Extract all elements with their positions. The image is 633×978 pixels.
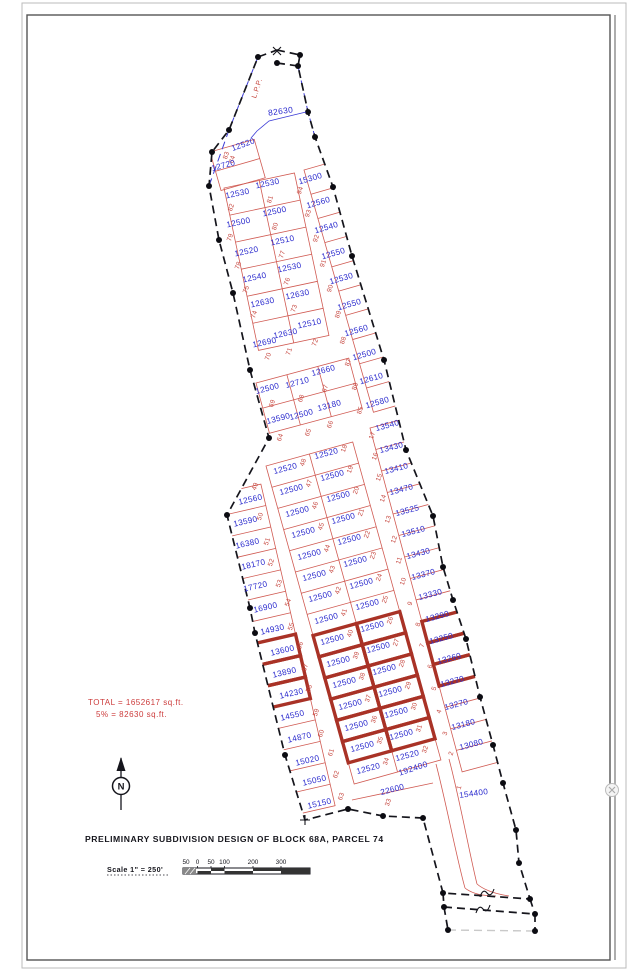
plat-drawing: 1252084127208312530821253081125007912500…	[0, 0, 633, 978]
lot-area-label: 12500	[301, 568, 327, 583]
lot-number-label: 54	[284, 598, 293, 608]
lot-number-label: 20	[352, 486, 361, 496]
lot-area-label: 14930	[260, 622, 286, 636]
lot-area-label: 13370	[410, 567, 436, 582]
lot-number-label: 2	[448, 750, 456, 756]
lot-number-label: 34	[382, 757, 391, 767]
lot-area-label: 12500	[313, 611, 339, 626]
lot-number-label: 22	[363, 530, 372, 540]
lot-area-label: 14230	[279, 686, 305, 700]
lot-area-label: 13260	[436, 651, 462, 666]
lot-number-label: 44	[323, 544, 332, 554]
lot-area-label: 13270	[439, 674, 465, 689]
scale-tick: 300	[276, 859, 287, 866]
lot-area-label: 14550	[280, 708, 306, 722]
lot-area-label: 12500	[330, 511, 356, 526]
lot-area-label: 14870	[287, 730, 313, 744]
lot-number-label: 23	[369, 551, 378, 561]
lot-area-label: 15300	[297, 171, 323, 186]
lot-number-label: 7	[419, 642, 427, 648]
lot-area-label: 17720	[243, 579, 269, 593]
lot-number-label: 11	[395, 556, 404, 565]
lot-number-label: 61	[327, 748, 336, 758]
lot-area-label: 12500	[325, 489, 351, 504]
lot-area-label: 13890	[272, 665, 298, 679]
lot-area-label: 13540	[374, 418, 400, 433]
lot-area-label: 12500	[342, 554, 368, 569]
lot-area-label: 15020	[295, 753, 321, 767]
lot-number-label: 41	[340, 608, 349, 618]
close-icon[interactable]	[606, 784, 619, 797]
lot-number-label: 87	[344, 358, 353, 368]
lot-number-label: 15	[375, 473, 384, 483]
lot-number-label: 73	[290, 304, 299, 314]
lot-number-label: 36	[370, 715, 379, 725]
lot-area-label: 13525	[394, 503, 420, 518]
break-symbol	[476, 905, 490, 913]
lot-area-label: 12630	[250, 296, 276, 310]
lot-number-label: 39	[352, 651, 361, 661]
lot-number-label: 64	[276, 433, 285, 443]
lot-number-label: 75	[242, 285, 251, 295]
lot-area-label: 12630	[285, 288, 311, 302]
lot-number-label: 31	[415, 724, 424, 734]
lot-number-label: 51	[263, 537, 272, 547]
lot-number-label: 25	[381, 595, 390, 605]
lot-area-label: 12560	[305, 195, 331, 210]
lot-number-label: 68	[297, 394, 306, 404]
lot-number-label: 50	[256, 512, 265, 522]
total-area-note: TOTAL = 1652617 sq.ft.	[88, 698, 184, 707]
lot-number-label: 12	[390, 535, 399, 545]
lot-area-label: 12540	[242, 271, 268, 285]
lot-area-label: 12580	[364, 395, 390, 410]
lot-area-label: 12520	[355, 761, 381, 776]
lot-number-label: 10	[399, 577, 408, 587]
lot-number-label: 69	[268, 399, 277, 409]
lot-number-label: 37	[364, 694, 373, 704]
lot-area-label: 12520	[234, 245, 260, 259]
outer-frame	[22, 3, 626, 968]
lot-area-label: 12510	[297, 317, 323, 331]
lot-number-label: 45	[317, 522, 326, 532]
lot-number-label: 38	[358, 672, 367, 682]
lot-number-label: 33	[384, 798, 393, 808]
lot-number-label: 66	[326, 420, 335, 430]
lot-area-label: 12500	[290, 525, 316, 540]
lot-number-label: 94	[296, 186, 305, 196]
lot-area-label: 15150	[307, 796, 333, 810]
lot-area-label: 12500	[262, 205, 288, 219]
lot-number-label: 62	[332, 770, 341, 780]
lot-area-label: 13290	[424, 609, 450, 624]
lot-number-label: 21	[357, 508, 366, 518]
scale-tick: 200	[248, 859, 259, 866]
lot-number-label: 63	[337, 792, 346, 802]
lot-number-label: 52	[267, 558, 276, 568]
lot-area-label: 13330	[417, 587, 443, 602]
lot-number-label: 42	[334, 586, 343, 596]
scale-tick: 50	[182, 859, 190, 866]
lot-number-label: 5	[431, 685, 439, 691]
scale-tick: 50	[207, 859, 215, 866]
lot-area-label: 12500	[288, 407, 314, 422]
lot-number-label: 19	[346, 465, 355, 475]
lot-area-label: 12520	[230, 136, 256, 153]
north-arrow: N	[113, 757, 130, 810]
lot-number-label: 30	[410, 702, 419, 712]
lot-area-label: 12550	[320, 246, 346, 261]
lot-area-label: 13510	[400, 524, 426, 539]
lot-number-label: 29	[404, 681, 413, 691]
lot-area-label: 12530	[255, 177, 281, 191]
lot-area-label: 154400	[459, 787, 489, 800]
lot-area-label: 12560	[238, 492, 264, 506]
lot-area-label: 12500	[343, 718, 369, 733]
lot-area-label: 12710	[284, 375, 310, 390]
lot-area-label: 12720	[210, 158, 236, 173]
lot-area-label: 12500	[284, 504, 310, 519]
lot-number-label: 14	[379, 494, 388, 504]
lot-number-label: 46	[311, 501, 320, 511]
lot-number-label: 26	[386, 616, 395, 626]
lot-area-label: 12510	[270, 234, 296, 248]
lot-number-label: 58	[305, 684, 314, 694]
lot-number-label: 1	[456, 784, 464, 790]
lot-area-label: 13470	[388, 482, 414, 497]
lot-area-label: 13590	[233, 514, 259, 528]
lot-area-label: 13180	[450, 717, 476, 732]
lot-number-label: 40	[346, 629, 355, 639]
lot-number-label: 92	[312, 234, 321, 244]
lot-number-label: 57	[301, 663, 310, 673]
lot-number-label: 32	[421, 745, 430, 755]
lot-number-label: 59	[312, 708, 321, 718]
lot-area-label: 13430	[405, 546, 431, 561]
lot-number-label: 86	[351, 382, 360, 392]
lot-area-label: 13430	[378, 440, 404, 455]
lot-number-label: 24	[375, 573, 384, 583]
lot-number-label: 81	[266, 195, 275, 205]
lot-number-label: 74	[250, 310, 259, 320]
lot-area-label: 13270	[443, 697, 469, 712]
lot-number-label: 93	[304, 209, 313, 219]
lot-area-label: 12500	[226, 216, 252, 230]
lot-number-label: 4	[436, 708, 444, 714]
lot-area-label: 16900	[253, 600, 279, 614]
lot-number-label: 65	[304, 428, 313, 438]
lot-number-label: 60	[317, 729, 326, 739]
lot-area-label: 13410	[383, 461, 409, 476]
lot-area-label: 13250	[428, 631, 454, 646]
lot-number-label: 47	[305, 479, 314, 489]
plat-page: 1252084127208312530821253081125007912500…	[0, 0, 633, 978]
scale-tick: 0	[196, 859, 200, 866]
lot-number-label: 80	[271, 222, 280, 232]
scale-text: Scale 1" = 250'	[107, 865, 163, 874]
lot-number-label: 28	[398, 659, 407, 669]
lot-number-label: 77	[278, 250, 287, 260]
lot-blocks	[210, 139, 532, 815]
strip-faint-line	[448, 930, 535, 931]
drawing-title: PRELIMINARY SUBDIVISION DESIGN OF BLOCK …	[85, 834, 384, 844]
lot-area-label: 12500	[349, 739, 375, 754]
road-lines	[352, 759, 509, 896]
lot-area-label: 12550	[336, 297, 362, 312]
lot-labels: 1252084127208312530821253081125007912500…	[210, 136, 488, 810]
lot-number-label: 43	[328, 565, 337, 575]
cross-mark	[300, 815, 310, 825]
lot-area-label: 12520	[313, 446, 339, 461]
lot-area-label: 12500	[319, 468, 345, 483]
lot-area-label: 12500	[354, 597, 380, 612]
lot-number-label: 48	[299, 458, 308, 468]
lot-number-label: 49	[251, 482, 260, 492]
lpp-label: L.P.P.	[251, 78, 264, 99]
lot-number-label: 76	[283, 277, 292, 287]
lot-area-label: 18170	[241, 557, 267, 571]
north-letter: N	[118, 782, 125, 793]
lot-number-label: 9	[407, 600, 415, 606]
lot-area-label: 12530	[328, 271, 354, 286]
lot-area-label: 12500	[336, 532, 362, 547]
lot-number-label: 3	[442, 730, 450, 736]
lot-area-label: 12500	[348, 576, 374, 591]
lot-number-label: 82	[227, 203, 236, 213]
lot-area-label: 12540	[313, 220, 339, 235]
lot-number-label: 18	[340, 444, 349, 454]
lot-area-label: 12660	[310, 363, 336, 378]
lot-number-label: 13	[384, 515, 393, 525]
lot-area-label: 12500	[254, 381, 280, 396]
lot-number-label: 27	[392, 638, 401, 648]
lot-area-label: 12500	[331, 675, 357, 690]
lot-area-label: 12630	[273, 327, 299, 341]
lot-area-label: 13080	[458, 737, 484, 752]
lot-area-label: 13600	[270, 643, 296, 657]
lot-area-label: 12500	[307, 589, 333, 604]
lot-area-label: 16380	[235, 536, 261, 550]
lot-number-label: 67	[321, 384, 330, 394]
reserve-percent-note: 5% = 82630 sq.ft.	[96, 710, 167, 719]
lot-area-label: 12530	[277, 261, 303, 275]
lot-number-label: 56	[296, 641, 305, 651]
lot-number-label: 71	[285, 347, 294, 357]
lot-area-label: 22600	[379, 782, 405, 797]
lot-number-label: 72	[311, 338, 320, 348]
lot-number-label: 70	[264, 352, 273, 362]
lot-number-label: 85	[356, 406, 365, 416]
lot-area-label: 12500	[337, 697, 363, 712]
lot-number-label: 35	[376, 736, 385, 746]
scale-tick: 100	[219, 859, 230, 866]
lot-area-label: 12500	[296, 547, 322, 562]
scale-bar: 50 0 50 100 200 300	[182, 859, 310, 874]
lot-area-label: 12500	[325, 654, 351, 669]
